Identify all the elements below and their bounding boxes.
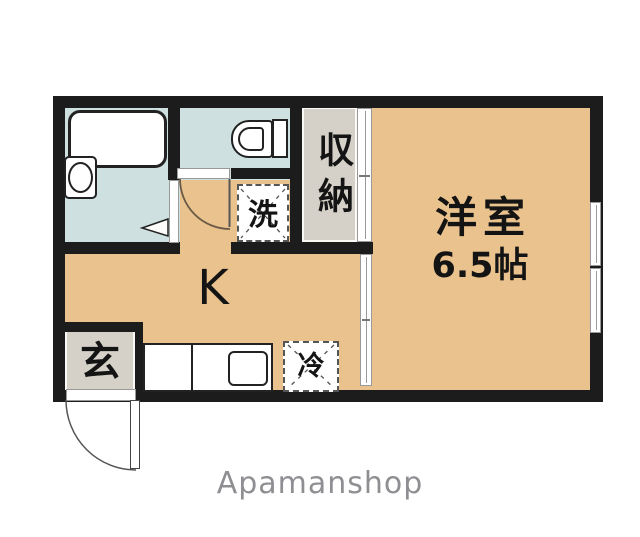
window-lower bbox=[590, 268, 601, 333]
label-kitchen: K bbox=[178, 264, 248, 312]
window-lower-line bbox=[596, 271, 597, 330]
wall-closet-left bbox=[290, 107, 302, 242]
counter-sink bbox=[228, 351, 268, 386]
wall-top bbox=[53, 96, 603, 108]
watermark-text: Apamanshop bbox=[0, 466, 640, 501]
bath-sink-basin bbox=[68, 162, 93, 193]
counter-divider bbox=[191, 345, 193, 390]
label-western-room: 洋室 bbox=[415, 197, 545, 239]
window-upper bbox=[590, 202, 601, 266]
bath-door bbox=[169, 180, 179, 243]
label-fridge: 冷 bbox=[295, 353, 327, 380]
toilet-bowl-inner bbox=[238, 127, 264, 151]
label-washer: 洗 bbox=[247, 201, 279, 231]
entrance-door-arc bbox=[66, 400, 136, 470]
entrance-doorway bbox=[66, 389, 136, 401]
wall-entrance-right bbox=[135, 322, 143, 394]
entrance-door-leaf bbox=[130, 400, 140, 469]
wall-mid-bottom bbox=[231, 242, 373, 254]
label-western-room-size: 6.5帖 bbox=[410, 249, 550, 284]
window-upper-line bbox=[596, 205, 597, 263]
wall-bath-bottom bbox=[53, 242, 180, 254]
sliding-door-closet-divider bbox=[359, 175, 370, 177]
sliding-door-room-divider bbox=[362, 319, 370, 321]
sliding-door-closet bbox=[357, 108, 372, 242]
toilet-tank bbox=[272, 119, 288, 158]
label-closet: 収納 bbox=[304, 122, 350, 232]
toilet-doorway bbox=[177, 168, 230, 179]
label-entrance: 玄 bbox=[78, 342, 122, 382]
wall-entrance-top bbox=[63, 322, 143, 332]
sliding-door-room bbox=[360, 254, 372, 386]
floor-plan: K 洋室 6.5帖 収納 玄 洗 冷 Apamanshop bbox=[0, 0, 640, 537]
